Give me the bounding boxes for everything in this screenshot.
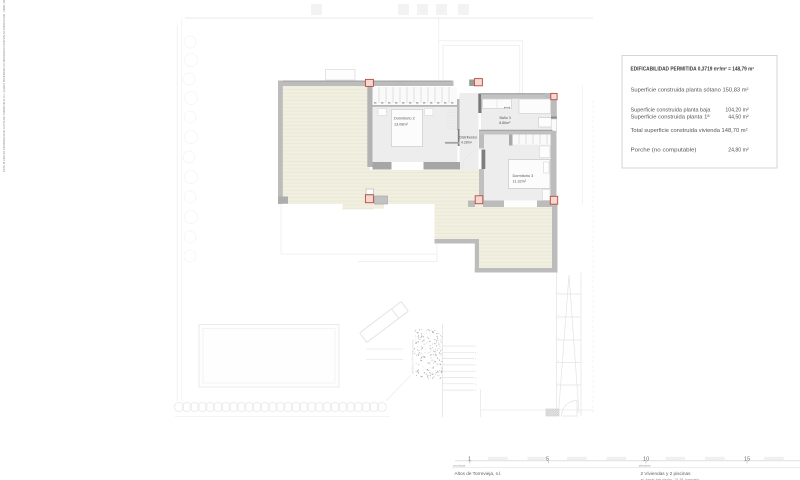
svg-text:Porche (no computable): Porche (no computable) bbox=[631, 147, 697, 153]
svg-text:Altos de Torrevieja, s.l.: Altos de Torrevieja, s.l. bbox=[455, 471, 502, 476]
svg-text:Superficie construida planta b: Superficie construida planta baja bbox=[631, 107, 711, 113]
svg-text:5: 5 bbox=[546, 456, 549, 462]
svg-text:Distribuidor: Distribuidor bbox=[460, 136, 479, 140]
svg-text:EDIFICABILIDAD PERMITIDA 0,371: EDIFICABILIDAD PERMITIDA 0,3719 m²/m² = … bbox=[631, 66, 755, 72]
svg-text:Dormitorio 3: Dormitorio 3 bbox=[513, 174, 534, 178]
svg-text:4.28m²: 4.28m² bbox=[461, 141, 473, 145]
svg-text:Superficie construida planta 1: Superficie construida planta 1ª bbox=[631, 114, 710, 120]
svg-text:1: 1 bbox=[468, 456, 471, 462]
svg-text:10: 10 bbox=[643, 456, 649, 462]
svg-text:Total superficie construida vi: Total superficie construida vivienda 148… bbox=[631, 128, 748, 134]
svg-text:pendiente 12% rampa acceso: pendiente 12% rampa acceso bbox=[411, 339, 415, 374]
svg-text:8.86m²: 8.86m² bbox=[499, 121, 511, 125]
svg-text:2 Viviendas y 2 piscinas: 2 Viviendas y 2 piscinas bbox=[641, 471, 692, 476]
svg-text:ESTE PLANO ES PROPIEDAD DE ALT: ESTE PLANO ES PROPIEDAD DE ALTOS DE TORR… bbox=[2, 0, 6, 172]
svg-text:Superficie construida planta s: Superficie construida planta sótano 150,… bbox=[631, 88, 749, 94]
svg-text:104,20 m²: 104,20 m² bbox=[725, 107, 749, 113]
svg-text:Baño 3: Baño 3 bbox=[500, 116, 511, 120]
svg-text:44,50 m²: 44,50 m² bbox=[728, 114, 749, 120]
svg-text:13.08m²: 13.08m² bbox=[394, 122, 409, 126]
svg-text:proyecto: proyecto bbox=[639, 464, 651, 468]
svg-text:15: 15 bbox=[744, 456, 750, 462]
svg-text:24,80 m²: 24,80 m² bbox=[728, 147, 749, 153]
svg-text:promotor: promotor bbox=[454, 464, 466, 468]
svg-text:11.32m²: 11.32m² bbox=[513, 180, 527, 184]
svg-text:Dormitorio 2: Dormitorio 2 bbox=[394, 117, 415, 121]
